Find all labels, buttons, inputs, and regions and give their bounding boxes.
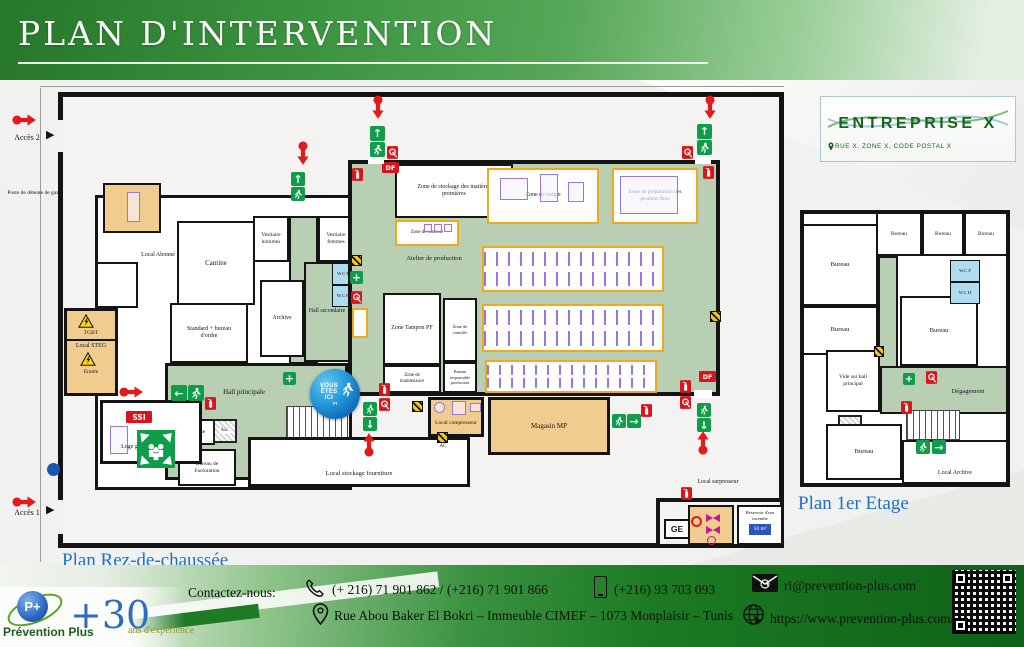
room-label: Hall principale: [198, 388, 290, 396]
ff-staircase: [906, 410, 960, 440]
machine-outline: [540, 174, 558, 202]
room-label: Zone de maintenance: [392, 373, 432, 385]
room-label: Poste de détente de gaz: [2, 190, 64, 197]
machine-outline: [452, 401, 466, 415]
room-label: Archive: [272, 315, 291, 323]
globe-icon: [742, 603, 765, 626]
fire-access-arrow: [296, 140, 310, 166]
door-gap: [368, 157, 384, 164]
ff-room-bureau: Bureau: [876, 212, 922, 256]
fire-hose-icon: [926, 371, 937, 384]
room-label: Zone de stockage des matières premières: [411, 184, 497, 199]
yah-sub: PI: [333, 401, 338, 406]
access1-door-gap: [56, 500, 65, 534]
extinguisher-icon: [379, 383, 390, 396]
phone-numbers: (+ 216) 71 901 862 / (+216) 71 901 866: [332, 582, 548, 598]
tank-capacity: 50 m³: [749, 524, 772, 535]
qr-finder: [1000, 571, 1015, 586]
footer-banner: P+ Prévention Plus +30 ans d'expérience …: [0, 565, 1024, 647]
exit-runman-icon: [612, 414, 626, 428]
email-address: ri@prevention-plus.com: [784, 578, 916, 594]
room-label: Local surpresseur: [676, 479, 760, 486]
room-label: Bureau: [831, 326, 850, 334]
exit-runman-icon: [363, 402, 377, 416]
room-label: Bureau: [935, 231, 951, 238]
company-name: ENTREPRISE X: [821, 115, 1015, 133]
fire-hose-icon: [351, 291, 362, 304]
exit-runman-icon: [697, 403, 711, 417]
phone-icon: [305, 578, 327, 600]
website-url: https://www.prevention-plus.com/: [770, 611, 954, 627]
logo-experience: ans d'expérience: [128, 625, 194, 636]
fire-access-arrow: [371, 94, 385, 120]
generator-label: GE: [671, 524, 683, 534]
room-label: Standard + bureau d'ordre: [181, 326, 237, 341]
ff-room-bureau: Bureau: [964, 212, 1008, 256]
room-label: Local compresseur: [435, 420, 477, 427]
room-zone-tampon: Zone Tampon PF: [383, 293, 441, 365]
property-line-top: [40, 86, 784, 87]
exit-right-icon: →: [932, 440, 946, 454]
ff-room-bureau: Bureau: [802, 306, 878, 355]
fire-access-arrow: [11, 113, 37, 127]
room-label: Magasin MP: [531, 422, 567, 431]
machine-outline: [444, 224, 452, 232]
page: PLAN D'INTERVENTION ENTREPRISE X RUE X, …: [0, 0, 1024, 647]
room-standard: Standard + bureau d'ordre: [170, 303, 248, 363]
mobile-icon-base: [598, 594, 603, 596]
room-label: Zone Tampon PF: [390, 325, 434, 333]
machine-outline: [620, 176, 678, 214]
first-aid-icon: +: [283, 372, 296, 385]
contact-label: Contactez-nous:: [188, 585, 276, 601]
alarm-call-point-icon: [874, 346, 884, 357]
workstation-rows: [485, 360, 657, 393]
room-label: Cantine: [205, 259, 227, 268]
cutoff-label: AC: [434, 444, 452, 450]
electrical-hazard-icon: [80, 352, 96, 366]
machine-outline: [434, 224, 442, 232]
room-label: W.C F: [959, 268, 971, 274]
logo-sphere: P+: [17, 591, 48, 622]
exit-runman-icon: [291, 187, 305, 201]
first-aid-icon: +: [903, 373, 915, 385]
exit-runman-icon: [370, 142, 385, 157]
cutoff-switch-icon: [437, 432, 448, 443]
extinguisher-icon: [680, 380, 691, 393]
fire-access-arrow: [11, 495, 37, 509]
exit-runman-icon: [188, 385, 204, 401]
room-label: Entrée: [68, 369, 114, 376]
door-gap: [695, 157, 711, 164]
room-label: TGBT: [68, 330, 114, 337]
room-label: W.C H: [959, 290, 972, 296]
exit-down-icon: ↓: [363, 417, 377, 431]
qr-finder: [953, 571, 968, 586]
extinguisher-icon: [703, 166, 714, 179]
street-address: Rue Abou Baker El Bokri – Immeuble CIMEF…: [334, 608, 733, 624]
exit-left-icon: ←: [171, 385, 187, 401]
fire-access-arrow: [362, 432, 376, 458]
extinguisher-icon: [641, 404, 652, 417]
fire-access-arrow: [703, 94, 717, 120]
room-reservoir: Réservoir d'eau incendie50 m³: [737, 505, 783, 545]
fire-hose-icon: [680, 396, 691, 409]
cutoff-switch-icon: [412, 401, 423, 412]
room-label: Bureau: [930, 327, 949, 335]
room-bureau-resp-production: Bureau responsable production: [443, 362, 477, 393]
generator-box: GE: [664, 519, 690, 539]
room-label: Bureau: [891, 231, 907, 238]
email-icon: [752, 574, 778, 592]
ssi-badge: SSI: [126, 411, 152, 423]
electrical-hazard-icon: [78, 314, 94, 328]
fire-hose-icon: [682, 146, 693, 159]
machine-outline: [127, 192, 140, 222]
logo-monogram: P+: [24, 599, 40, 614]
room-label: Réservoir d'eau incendie: [741, 510, 779, 521]
caption-first-floor: Plan 1er Etage: [798, 493, 909, 515]
smoke-vent-badge: DF: [699, 371, 716, 382]
access2-door-gap: [56, 120, 65, 152]
smoke-vent-badge: DF: [382, 162, 399, 173]
wall-divider: [66, 339, 116, 341]
ff-room-bureau: Bureau: [922, 212, 964, 256]
company-address: RUE X, ZONE X, CODE POSTAL X: [835, 143, 952, 150]
room-label: Bureau: [855, 448, 874, 456]
room-label: Local stockage fourniture: [326, 470, 393, 478]
room-magasin-mp: Magasin MP: [488, 397, 610, 455]
workstation-rows: [482, 304, 664, 352]
machine-outline: [434, 402, 445, 413]
access-direction-icon: ▶: [46, 503, 54, 516]
pump-icon: [707, 536, 716, 545]
exit-right-icon: →: [627, 414, 641, 428]
access2-label: Accès 2: [8, 133, 46, 143]
workstation-rows: [482, 246, 664, 292]
storage-rack: [352, 308, 368, 338]
mobile-number: (+216) 93 703 093: [614, 582, 715, 598]
company-card: ENTREPRISE X RUE X, ZONE X, CODE POSTAL …: [820, 96, 1016, 162]
exit-up-icon: ↑: [370, 126, 385, 141]
room-label: Zone de contrôle: [447, 324, 473, 335]
extinguisher-icon: [681, 487, 692, 500]
room-archive: Archive: [260, 280, 304, 357]
person-icon: [340, 379, 355, 399]
ff-room-vide: Vide sur hall principal: [826, 350, 880, 412]
room-local-abonne: [96, 262, 138, 308]
header-banner: PLAN D'INTERVENTION: [0, 0, 1024, 80]
room-zone-maintenance: Zone de maintenance: [383, 365, 441, 393]
room-label: Bureau: [978, 231, 994, 238]
room-vestiaire-hommes: Vestiaire hommes: [253, 216, 289, 262]
company-pin-icon: [828, 142, 834, 151]
qr-finder: [953, 618, 968, 633]
alarm-call-point-icon: [710, 311, 721, 322]
extinguisher-icon: [901, 401, 912, 414]
room-label: Bureau responsable production: [446, 369, 474, 385]
exit-up-icon: ↑: [291, 172, 305, 186]
room-zone-controle-2: Zone de contrôle: [443, 298, 477, 362]
fire-hose-icon: [387, 146, 398, 159]
fire-hose-icon: [379, 398, 390, 411]
room-label: Dégagement: [936, 388, 1000, 396]
location-pin-icon: [312, 603, 329, 625]
room-label: Asc.: [219, 428, 230, 434]
qr-code: [952, 570, 1016, 634]
ff-room-wc-f: W.C F: [950, 260, 980, 282]
ff-room-bureau: Bureau: [900, 296, 978, 366]
access-direction-icon: ▶: [46, 128, 54, 141]
exit-runman-icon: [916, 440, 930, 454]
room-label: Vestiaire hommes: [255, 232, 287, 246]
alarm-call-point-icon: [351, 255, 362, 266]
property-line-vertical: [40, 88, 41, 562]
ff-room-bureau: Bureau: [802, 224, 878, 306]
access1-label: Accès 1: [8, 508, 46, 518]
room-label: Vide sur hall principal: [833, 374, 873, 388]
room-label: Local Abonné: [128, 252, 188, 259]
door-gap: [694, 390, 712, 398]
fire-access-arrow: [696, 430, 710, 456]
assembly-point-icon: [137, 430, 175, 468]
you-are-here-marker: VOUS ÊTES ICI PI: [310, 369, 360, 419]
extinguisher-icon: [205, 397, 216, 410]
pump-icon: [691, 516, 702, 527]
machine-outline: [424, 224, 432, 232]
machine-outline: [568, 182, 584, 202]
fire-access-arrow: [118, 385, 144, 399]
room-label: Local STEG: [66, 343, 116, 350]
first-aid-icon: +: [350, 271, 363, 284]
room-label: Hall secondaire: [309, 308, 345, 315]
page-title: PLAN D'INTERVENTION: [18, 14, 497, 53]
elevator-gf: Asc.: [213, 419, 237, 443]
room-cantine: Cantine: [177, 221, 255, 305]
ff-room-wc-h: W.C H: [950, 282, 980, 304]
hydrant-icon: [47, 463, 60, 476]
machine-outline: [500, 178, 528, 200]
extinguisher-icon: [352, 168, 363, 181]
room-label: Local Archive: [938, 470, 972, 478]
room-label: Bureau: [831, 261, 850, 269]
ff-room-bureau: Bureau: [826, 424, 902, 480]
room-label: Atelier de production: [398, 255, 470, 263]
pump-valve-icon: [706, 526, 720, 534]
machine-outline: [470, 403, 481, 412]
title-underline: [18, 62, 708, 64]
exit-up-icon: ↑: [697, 124, 712, 139]
pump-valve-icon: [706, 514, 720, 522]
exit-runman-icon: [697, 140, 712, 155]
